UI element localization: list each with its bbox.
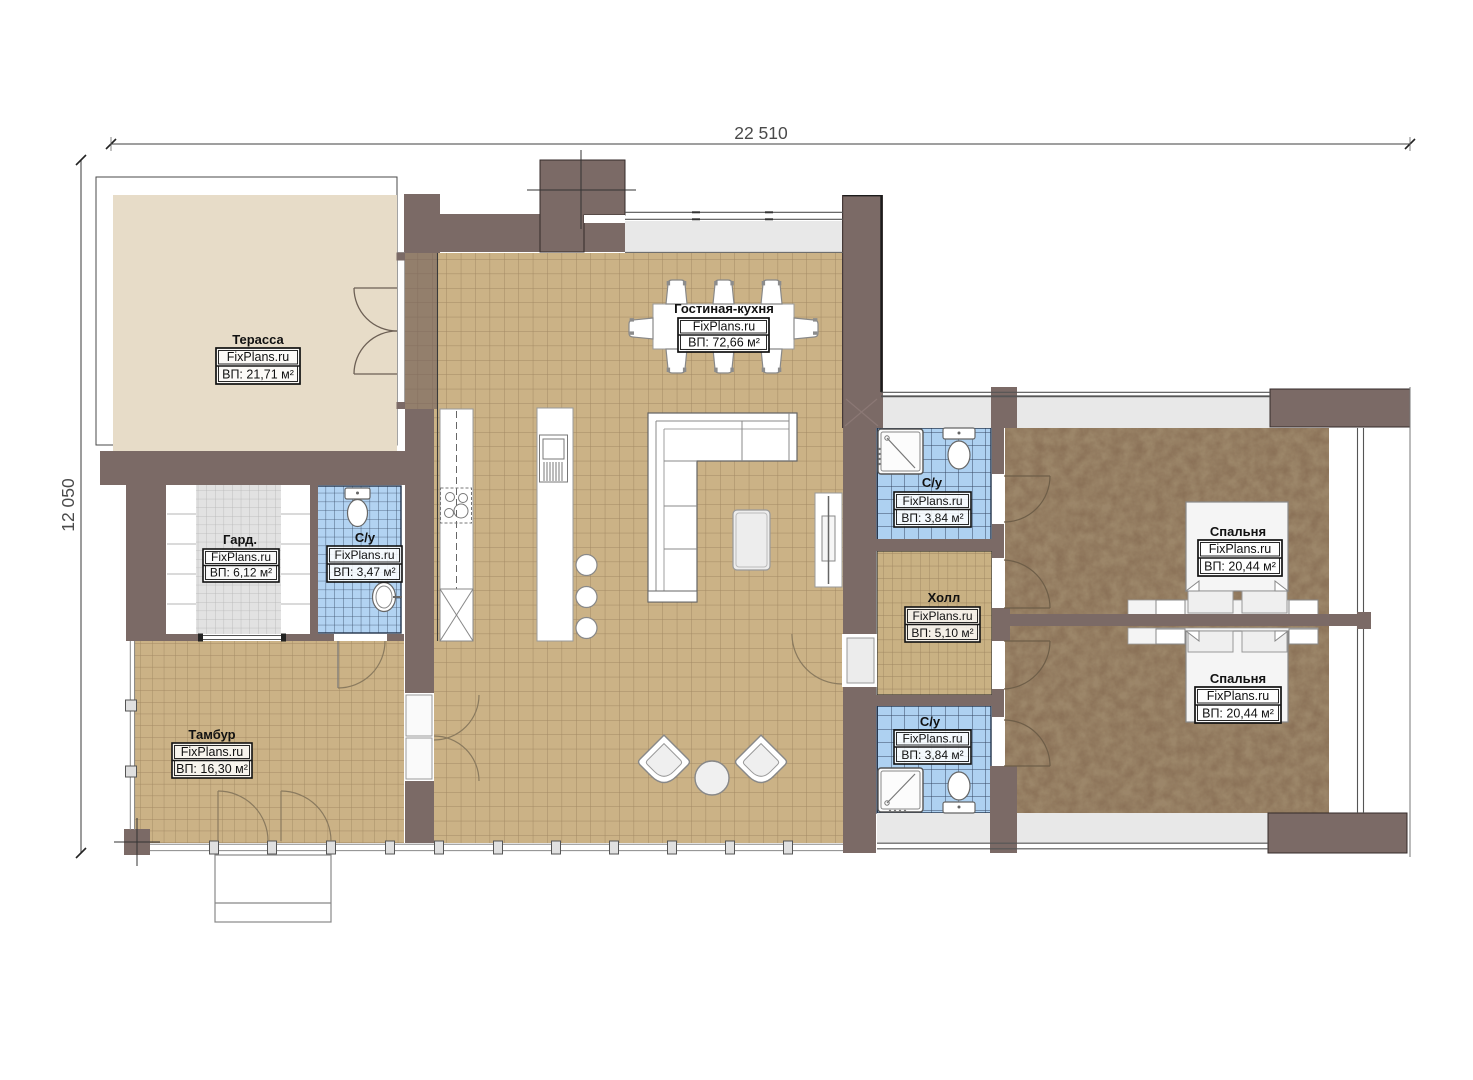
svg-text:22 510: 22 510 [734,123,788,143]
svg-text:FixPlans.ru: FixPlans.ru [902,732,962,746]
svg-text:FixPlans.ru: FixPlans.ru [1209,542,1272,556]
svg-text:Холл: Холл [928,590,961,605]
svg-text:ВП: 3,84 м²: ВП: 3,84 м² [901,748,963,762]
svg-text:ВП: 20,44 м²: ВП: 20,44 м² [1202,707,1274,721]
svg-text:FixPlans.ru: FixPlans.ru [1207,689,1270,703]
svg-text:ВП: 5,10 м²: ВП: 5,10 м² [911,626,973,640]
svg-text:ВП: 16,30 м²: ВП: 16,30 м² [176,762,248,776]
svg-text:ВП: 3,84 м²: ВП: 3,84 м² [901,511,963,525]
svg-text:FixPlans.ru: FixPlans.ru [334,548,394,562]
svg-text:FixPlans.ru: FixPlans.ru [211,550,271,564]
svg-text:ВП: 21,71 м²: ВП: 21,71 м² [222,368,294,382]
svg-text:Тамбур: Тамбур [188,727,235,742]
svg-text:Спальня: Спальня [1210,671,1266,686]
svg-text:FixPlans.ru: FixPlans.ru [693,320,756,334]
svg-text:Гостиная-кухня: Гостиная-кухня [674,301,774,316]
svg-text:ВП: 20,44 м²: ВП: 20,44 м² [1204,560,1276,574]
svg-text:С/у: С/у [355,530,376,545]
svg-text:FixPlans.ru: FixPlans.ru [181,745,244,759]
svg-text:FixPlans.ru: FixPlans.ru [912,609,972,623]
svg-text:ВП: 6,12 м²: ВП: 6,12 м² [210,566,272,580]
svg-text:ВП: 72,66 м²: ВП: 72,66 м² [688,336,760,350]
svg-text:FixPlans.ru: FixPlans.ru [227,350,290,364]
svg-text:Спальня: Спальня [1210,524,1266,539]
svg-text:С/у: С/у [920,714,941,729]
svg-text:FixPlans.ru: FixPlans.ru [902,494,962,508]
svg-text:12 050: 12 050 [58,478,78,532]
svg-text:Гард.: Гард. [223,532,257,547]
svg-text:Терасса: Терасса [232,332,284,347]
svg-text:ВП: 3,47 м²: ВП: 3,47 м² [333,565,395,579]
svg-text:С/у: С/у [922,475,943,490]
